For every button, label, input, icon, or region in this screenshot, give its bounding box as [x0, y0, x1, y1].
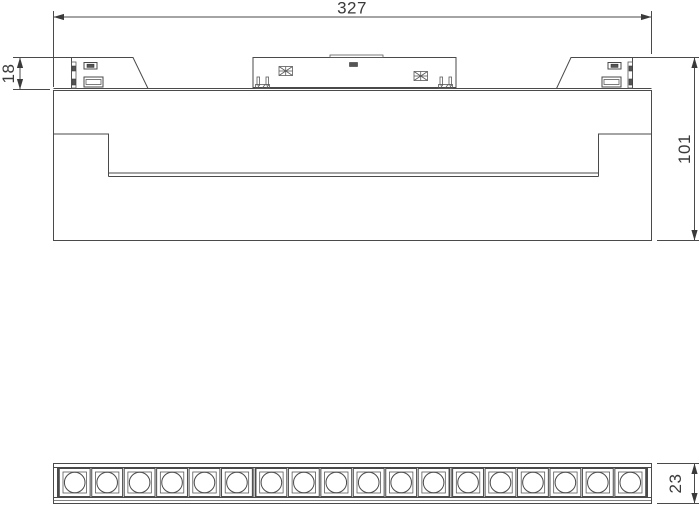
led-cell-bevel [586, 472, 609, 493]
led-module [452, 468, 647, 498]
dim-overall-length: 327 [54, 0, 652, 87]
screw-terminal-left [279, 67, 293, 76]
led-cell-bevel [456, 472, 479, 493]
driver-foot-right [439, 77, 453, 89]
led-module [255, 468, 450, 498]
screw-terminal-right [414, 72, 428, 81]
front-view [54, 464, 652, 504]
led-lens-circle [326, 472, 347, 493]
clip-spring-tooth [629, 79, 633, 85]
led-lens-circle [261, 472, 282, 493]
arrow-up-icon [691, 464, 697, 475]
foot-prong [449, 77, 452, 85]
led-lens-circle [423, 472, 444, 493]
led-cell-bevel [389, 472, 412, 493]
led-cell-bevel [521, 472, 544, 493]
led-cell-bevel [160, 472, 183, 493]
dim-clip-height: 18 [0, 58, 76, 90]
led-lens-circle [458, 472, 479, 493]
clip-latch [602, 77, 621, 87]
mount-clip-left [72, 58, 149, 89]
led-module-frame [255, 468, 450, 498]
led-lens-circle [358, 472, 379, 493]
driver-foot-left [256, 77, 270, 89]
led-lens-circle [162, 472, 183, 493]
side-view [54, 55, 652, 241]
led-cell-bevel [128, 472, 151, 493]
led-cell-bevel [95, 472, 118, 493]
mount-clip-right [557, 58, 633, 89]
dim-total-height-value: 101 [675, 134, 694, 164]
led-cell-bevel [63, 472, 86, 493]
led-lens-circle [227, 472, 248, 493]
clip-spring-tooth [72, 66, 76, 71]
led-module-frame [452, 468, 647, 498]
technical-drawing: 327 18 101 [0, 0, 700, 508]
dim-bar-height: 23 [657, 464, 699, 504]
body-step-right [599, 134, 652, 177]
led-cell-bevel [489, 472, 512, 493]
led-lens-circle [194, 472, 215, 493]
clip-detail-inner [611, 64, 618, 67]
arrow-down-icon [691, 230, 697, 241]
led-cell-bevel [357, 472, 380, 493]
clip-body [72, 58, 149, 89]
led-modules [59, 468, 647, 498]
body-outline [54, 91, 652, 241]
arrow-left-icon [54, 14, 65, 20]
led-lens-circle [490, 472, 511, 493]
foot-prong [257, 77, 260, 85]
body-step-left [54, 134, 109, 177]
led-lens-circle [97, 472, 118, 493]
driver-box-label [350, 63, 358, 67]
led-lens-circle [294, 472, 315, 493]
led-lens-circle [523, 472, 544, 493]
led-cell-bevel [554, 472, 577, 493]
arrow-up-icon [691, 58, 697, 69]
clip-latch-inner [86, 80, 101, 85]
driver-box [253, 55, 456, 89]
led-lens-circle [391, 472, 412, 493]
dim-bar-height-value: 23 [666, 474, 685, 494]
arrow-right-icon [641, 14, 652, 20]
led-lens-circle [64, 472, 85, 493]
led-cell-bevel [260, 472, 283, 493]
clip-detail-inner [87, 64, 94, 67]
led-cell-bevel [225, 472, 248, 493]
foot-prong [440, 77, 443, 85]
clip-spring-tooth [72, 79, 76, 85]
dim-overall-length-value: 327 [337, 0, 367, 18]
clip-spring-tooth [629, 66, 633, 71]
technical-drawing-page: 327 18 101 [0, 0, 700, 508]
led-module-frame [59, 468, 254, 498]
foot-prong [266, 77, 269, 85]
clip-latch-inner [604, 80, 619, 85]
dim-clip-height-value: 18 [0, 64, 18, 84]
arrow-down-icon [691, 493, 697, 504]
clip-latch [84, 77, 103, 87]
led-lens-circle [129, 472, 150, 493]
led-module [59, 468, 254, 498]
led-cell-bevel [619, 472, 642, 493]
led-cell-bevel [292, 472, 315, 493]
led-lens-circle [555, 472, 576, 493]
led-cell-bevel [422, 472, 445, 493]
led-lens-circle [588, 472, 609, 493]
led-lens-circle [620, 472, 641, 493]
led-cell-bevel [325, 472, 348, 493]
led-cell-bevel [193, 472, 216, 493]
dim-total-height: 101 [616, 58, 699, 241]
driver-box-tab [330, 55, 383, 58]
